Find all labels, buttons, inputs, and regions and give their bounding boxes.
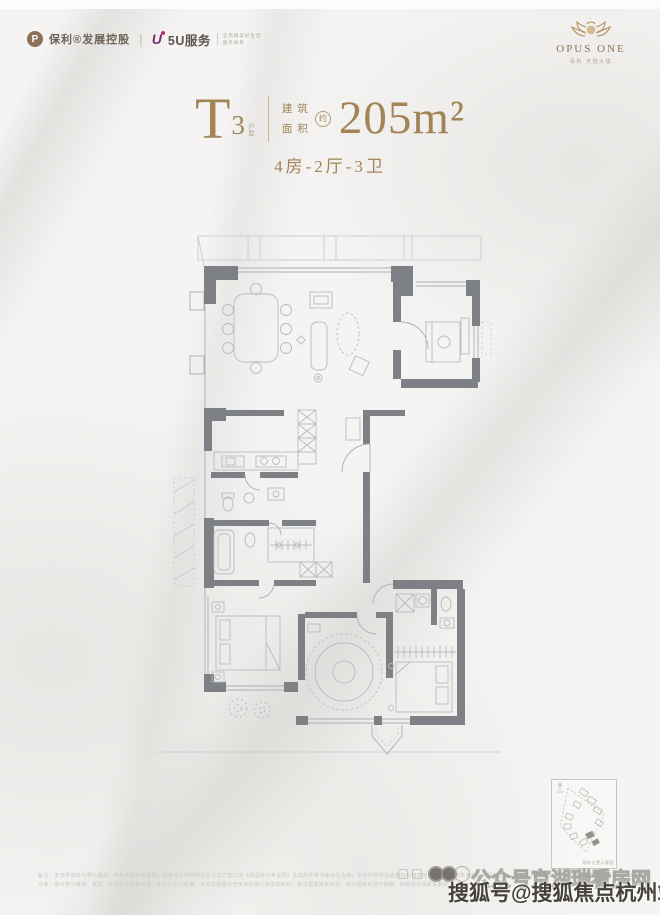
opus-one-name: OPUS ONE xyxy=(548,43,634,55)
title-divider xyxy=(268,96,269,142)
poster: P 保利®发展控股 | U 5U服务 全周期美好生活 服务体系 OPUS ONE… xyxy=(0,0,660,915)
brand-divider: | xyxy=(139,31,143,47)
unit-letter: T xyxy=(195,94,230,143)
site-key-plan-svg xyxy=(552,780,614,866)
area-label: 建筑 面积 xyxy=(282,101,313,136)
rooms-summary: 4房-2厅-3卫 xyxy=(274,152,386,177)
site-key-plan: 楼栋位置示意图 xyxy=(551,779,617,869)
opus-one-subtitle: 保利·天悦大境 xyxy=(548,58,634,65)
five-u-logo-icon: U xyxy=(152,31,162,47)
watermark-sohu-text: 搜狐号@搜狐焦点杭州站 xyxy=(448,877,660,907)
floor-plan: .w{fill:#7d8084;} .ln{fill:none;stroke:#… xyxy=(148,222,512,778)
watermark-mini-badges xyxy=(398,869,422,879)
north-arrow-icon xyxy=(557,783,563,792)
area-label-bottom: 面积 xyxy=(282,121,313,136)
opus-one-logo: OPUS ONE 保利·天悦大境 xyxy=(548,18,634,65)
floor-plan-svg: .w{fill:#7d8084;} .ln{fill:none;stroke:#… xyxy=(148,222,512,778)
unit-title-block: T 3 户型 建筑 面积 约 205m² 4房-2厅-3卫 xyxy=(0,94,660,177)
approx-circle-mark: 约 xyxy=(315,111,331,127)
area-label-top: 建筑 xyxy=(282,101,313,116)
five-u-tagline: 全周期美好生活 服务体系 xyxy=(217,33,262,45)
unit-title-row: T 3 户型 建筑 面积 约 205m² xyxy=(195,94,465,143)
brand-bar-left: P 保利®发展控股 | U 5U服务 全周期美好生活 服务体系 xyxy=(27,28,261,50)
poly-logo-icon: P xyxy=(27,31,43,47)
poly-brand-label: 保利®发展控股 xyxy=(49,31,130,47)
unit-tag: 户型 xyxy=(246,123,255,137)
five-u-tagline-line1: 全周期美好生活 xyxy=(223,33,262,38)
area-value: 205m² xyxy=(339,95,465,142)
opus-one-emblem-icon xyxy=(569,18,613,42)
five-u-tagline-line2: 服务体系 xyxy=(223,40,262,45)
five-u-label: 5U服务 xyxy=(168,30,211,49)
unit-number: 3 xyxy=(231,110,245,141)
